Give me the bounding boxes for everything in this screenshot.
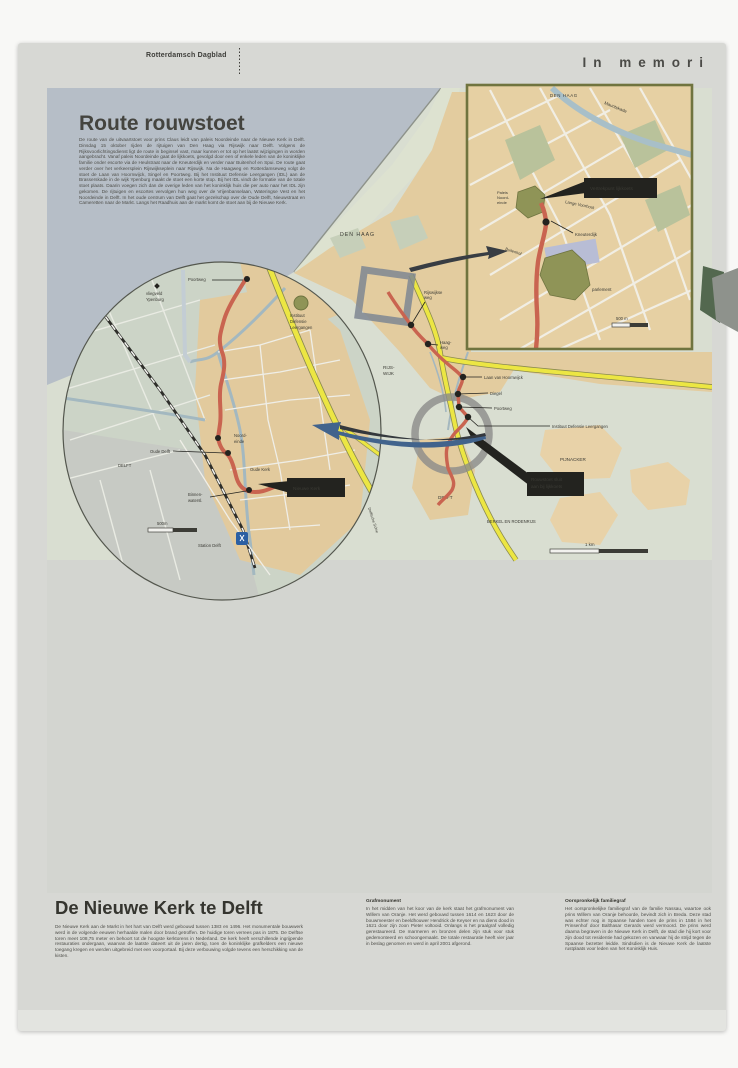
svg-text:aan bij lijkkoets: aan bij lijkkoets [531,484,563,489]
svg-text:Vertrekpunt lijkkoets: Vertrekpunt lijkkoets [590,186,634,192]
svg-text:Oude Delft: Oude Delft [150,449,171,454]
svg-text:Kneuterdijk: Kneuterdijk [575,232,598,237]
svg-text:DEN HAAG: DEN HAAG [550,93,578,98]
svg-text:Leergangen: Leergangen [290,325,313,330]
svg-text:Oude Kerk: Oude Kerk [250,467,271,472]
svg-text:vliegveld: vliegveld [146,291,163,296]
svg-text:BERKEL EN RODENRIJS: BERKEL EN RODENRIJS [487,519,536,524]
svg-text:Laan van Hoornwijck: Laan van Hoornwijck [484,375,524,380]
svg-text:Instituut: Instituut [290,313,306,318]
svg-text:einde: einde [497,200,508,205]
svg-text:parlement: parlement [592,287,612,292]
svg-text:einde: einde [234,439,245,444]
svg-text:Noord-: Noord- [234,433,247,438]
svg-text:Poortweg: Poortweg [494,406,512,411]
svg-text:Diegel: Diegel [490,391,502,396]
svg-text:DELFT: DELFT [118,463,132,468]
svg-text:watersl.: watersl. [188,498,202,503]
svg-text:500 m: 500 m [616,316,628,321]
svg-text:PIJNACKER: PIJNACKER [560,457,586,462]
svg-text:WIJK: WIJK [383,371,395,376]
svg-text:weg: weg [440,345,448,350]
svg-text:Rouwstoet sluit: Rouwstoet sluit [531,477,563,482]
svg-text:Poortweg: Poortweg [188,277,206,282]
svg-text:Defensie: Defensie [290,319,307,324]
svg-text:Instituut Defensie Leergangen: Instituut Defensie Leergangen [552,424,609,429]
svg-text:weg: weg [424,295,432,300]
svg-text:DEN HAAG: DEN HAAG [340,232,375,238]
svg-text:Nieuwe Kerk: Nieuwe Kerk [293,486,321,492]
svg-text:Binnen-: Binnen- [188,492,203,497]
svg-text:RIJS-: RIJS- [383,365,395,370]
svg-text:1 km: 1 km [585,542,595,547]
svg-text:Ypenburg: Ypenburg [146,297,165,302]
svg-text:500m: 500m [157,521,168,526]
svg-text:Station Delft: Station Delft [198,543,222,548]
